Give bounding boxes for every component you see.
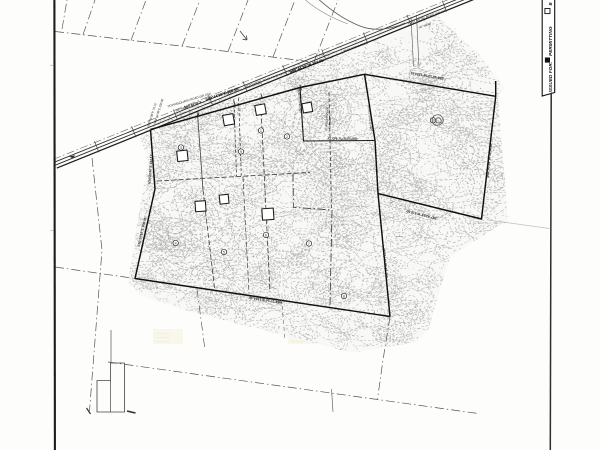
svg-text:2: 2 [286, 135, 288, 139]
svg-text:7: 7 [308, 242, 310, 246]
svg-text:6: 6 [265, 233, 267, 237]
svg-text:1: 1 [260, 129, 262, 133]
svg-text:B: B [548, 2, 553, 5]
svg-text:8: 8 [343, 294, 345, 298]
svg-text:PERMITTING: PERMITTING [548, 26, 554, 56]
svg-text:ISSUED FOR:: ISSUED FOR: [548, 61, 554, 92]
svg-text:4: 4 [175, 241, 177, 245]
svg-text:5: 5 [223, 250, 225, 254]
svg-text:3: 3 [180, 146, 182, 150]
svg-text:9: 9 [240, 150, 242, 154]
svg-text:~~ ~~~ ~~: ~~ ~~~ ~~ [156, 339, 170, 343]
svg-text:S87°27'57"E 443.72': S87°27'57"E 443.72' [327, 136, 357, 140]
